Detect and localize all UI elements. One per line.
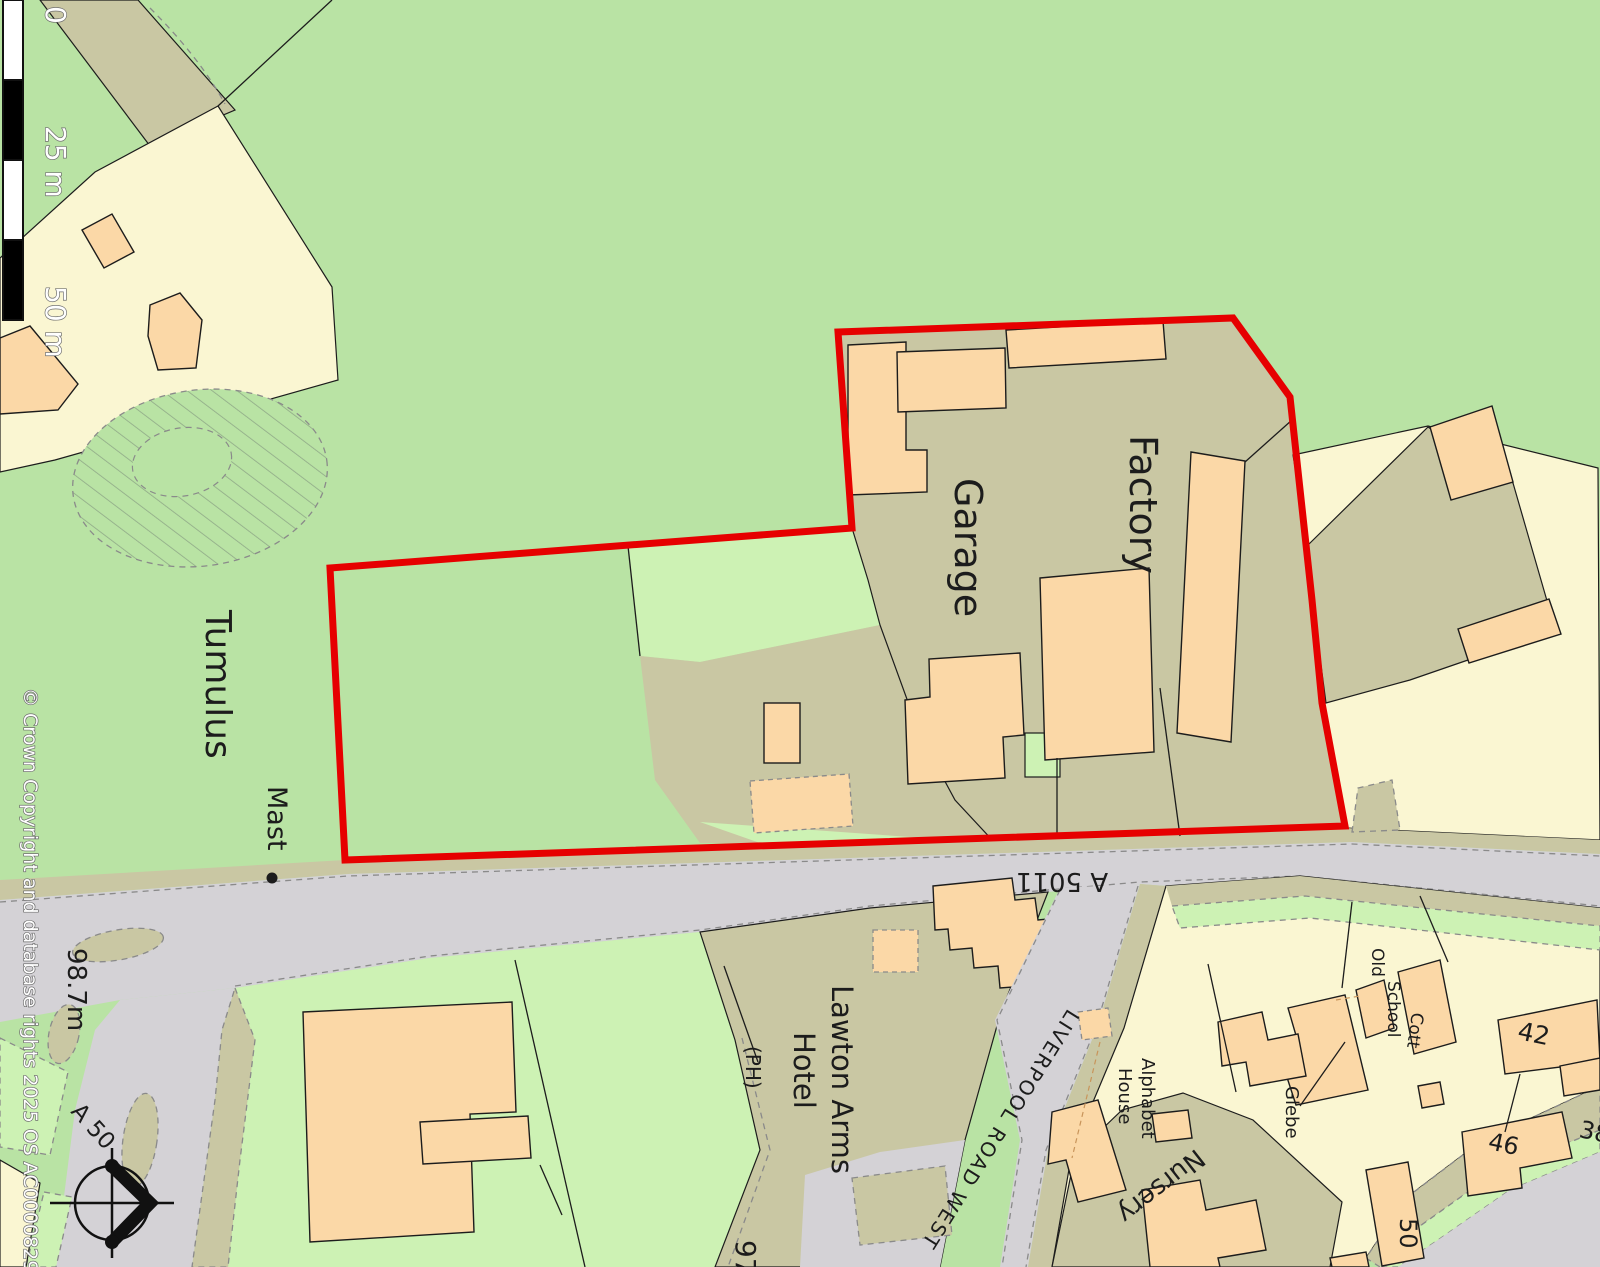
house-label: House (1114, 1068, 1135, 1124)
building (1418, 1082, 1444, 1108)
building (764, 703, 800, 763)
spot-height-987: 98.7m (61, 948, 91, 1031)
alphabet-label: Alphabet (1137, 1058, 1158, 1139)
tumulus-label: Tumulus (197, 609, 238, 759)
school-label: School (1383, 981, 1403, 1037)
building (420, 1116, 531, 1164)
a5011-label: A 5011 (1016, 866, 1108, 896)
map-svg: 0 25 m 50 m Tumulus Mast Garage Factory … (0, 0, 1600, 1267)
scale-tick-25: 25 m (39, 126, 72, 198)
map-canvas[interactable]: 0 25 m 50 m Tumulus Mast Garage Factory … (0, 0, 1600, 1267)
mast-point (267, 873, 278, 884)
building-dashed (750, 774, 853, 833)
factory-label: Factory (1121, 435, 1165, 574)
hotel-label: Hotel (787, 1032, 821, 1109)
building (897, 348, 1006, 412)
building-dashed (1078, 1008, 1112, 1040)
old-label: Old (1367, 948, 1387, 977)
copyright-text: © Crown Copyright and database rights 20… (19, 688, 41, 1267)
scale-tick-0: 0 (39, 6, 72, 24)
spot-height-97: 97 (729, 1240, 762, 1267)
scale-tick-50: 50 m (39, 286, 72, 358)
ph-label: (PH) (741, 1046, 765, 1089)
building (1040, 568, 1154, 760)
garage-label: Garage (946, 478, 990, 617)
building-dashed (873, 930, 918, 972)
no50-label: 50 (1394, 1218, 1422, 1249)
glebe-label: Glebe (1281, 1086, 1302, 1139)
lawton-arms-label: Lawton Arms (825, 985, 859, 1174)
mast-label: Mast (261, 786, 292, 851)
layby (1352, 780, 1400, 832)
